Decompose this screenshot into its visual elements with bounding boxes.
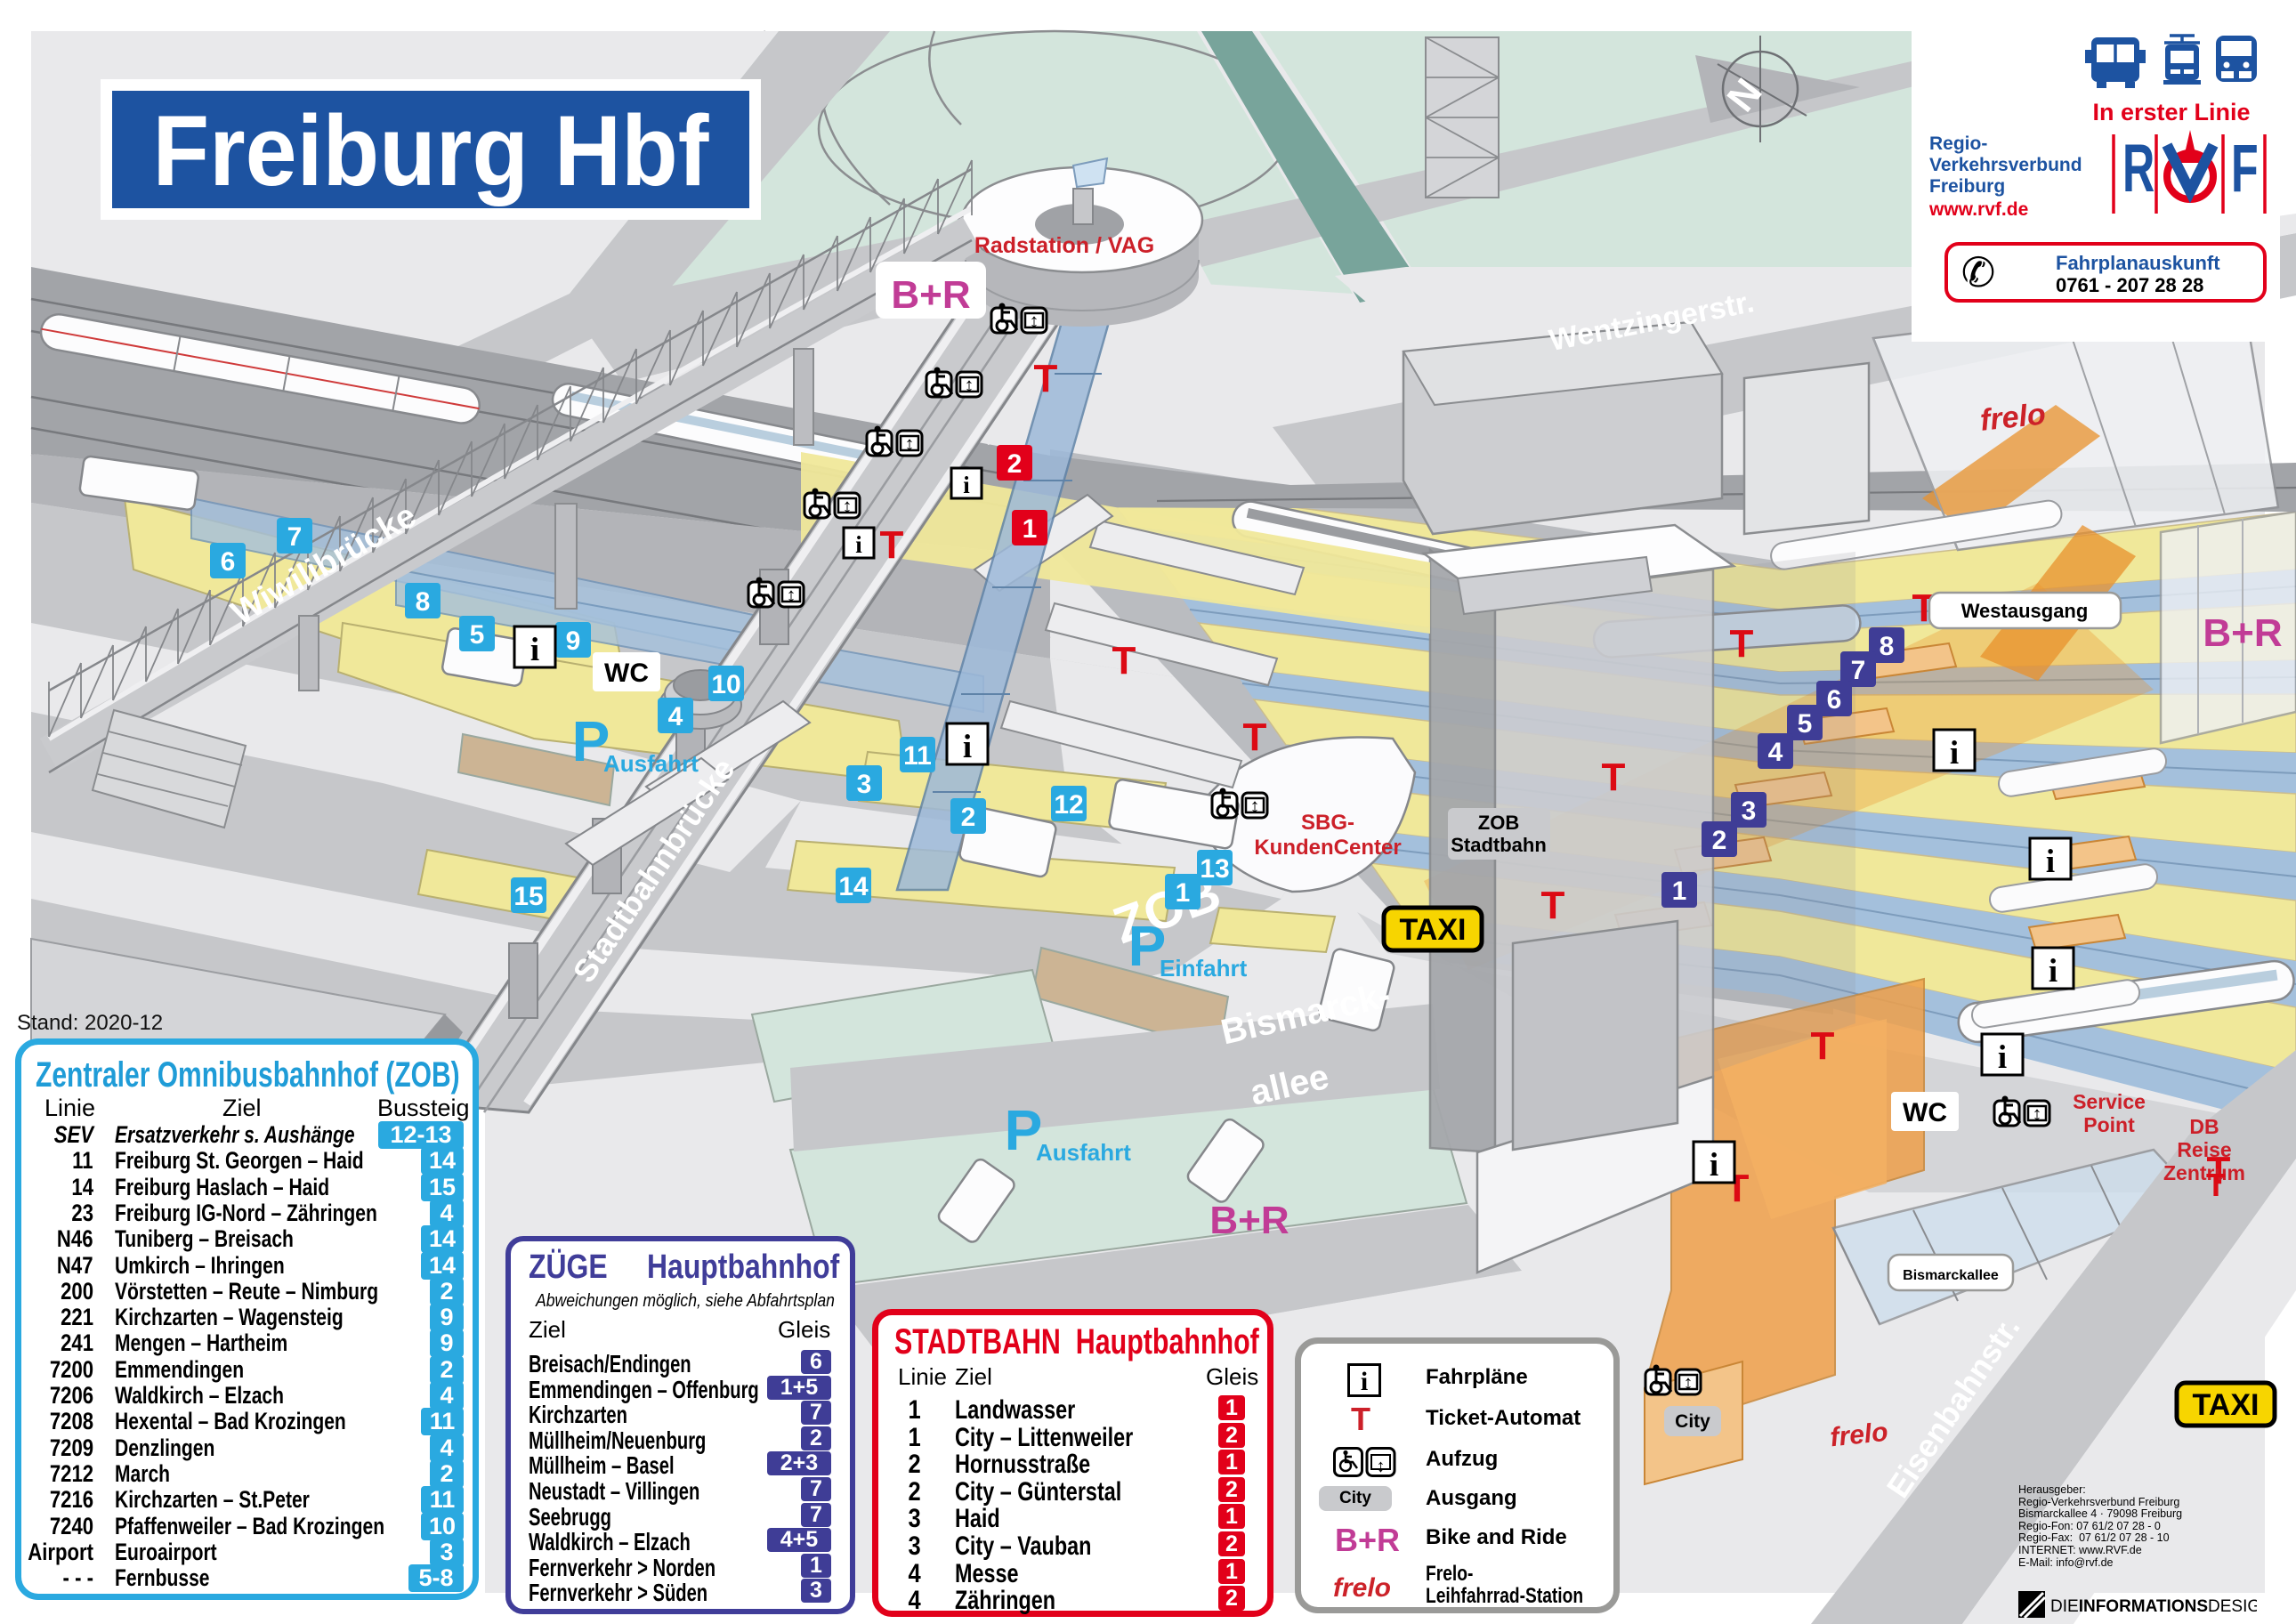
svg-text:1: 1 xyxy=(1023,514,1038,544)
svg-text:DIEINFORMATIONSDESIGNER: DIEINFORMATIONSDESIGNER xyxy=(2050,1597,2257,1616)
svg-text:frelo: frelo xyxy=(1829,1418,1889,1453)
svg-text:TAXI: TAXI xyxy=(2193,1388,2260,1422)
svg-text:9: 9 xyxy=(566,626,581,656)
svg-text:i: i xyxy=(1710,1147,1718,1184)
svg-text:2: 2 xyxy=(1712,826,1727,855)
svg-text:R: R xyxy=(2122,131,2155,206)
svg-text:4: 4 xyxy=(668,702,683,731)
svg-text:i: i xyxy=(1950,735,1959,772)
svg-text:3: 3 xyxy=(1742,796,1757,826)
svg-text:WC: WC xyxy=(1903,1098,1947,1127)
svg-text:City: City xyxy=(1675,1411,1710,1432)
svg-text:2: 2 xyxy=(1007,449,1023,479)
svg-text:6: 6 xyxy=(1827,685,1842,715)
svg-text:i: i xyxy=(1361,1367,1368,1396)
svg-text:T: T xyxy=(1112,639,1136,683)
svg-text:In erster Linie: In erster Linie xyxy=(2092,99,2250,125)
svg-text:7: 7 xyxy=(287,522,303,552)
svg-text:1: 1 xyxy=(1176,878,1191,908)
svg-text:Regio-: Regio- xyxy=(1929,133,1987,154)
svg-text:B+R: B+R xyxy=(891,273,970,317)
svg-text:Verkehrsverbund: Verkehrsverbund xyxy=(1929,155,2082,175)
svg-text:8: 8 xyxy=(1880,632,1895,661)
svg-text:↕: ↕ xyxy=(965,374,974,396)
svg-text:Freiburg: Freiburg xyxy=(1929,176,2005,197)
svg-text:B+R: B+R xyxy=(2203,611,2282,655)
svg-text:7: 7 xyxy=(1851,656,1866,685)
svg-text:T: T xyxy=(880,523,904,567)
svg-text:↕: ↕ xyxy=(905,432,915,455)
svg-text:TAXI: TAXI xyxy=(1400,913,1467,947)
svg-text:Reise: Reise xyxy=(2177,1138,2231,1161)
svg-text:ZOB: ZOB xyxy=(1478,812,1519,834)
svg-text:↕: ↕ xyxy=(1250,795,1260,817)
svg-text:↕: ↕ xyxy=(2033,1103,2042,1125)
svg-text:KundenCenter: KundenCenter xyxy=(1254,836,1401,860)
svg-text:i: i xyxy=(963,729,972,765)
svg-text:↕: ↕ xyxy=(1684,1371,1694,1394)
svg-text:10: 10 xyxy=(711,670,740,699)
svg-text:T: T xyxy=(1034,357,1058,400)
svg-text:i: i xyxy=(963,472,970,498)
svg-text:T: T xyxy=(2206,1167,2226,1203)
svg-text:Ausfahrt: Ausfahrt xyxy=(603,750,699,777)
svg-text:↕: ↕ xyxy=(787,584,796,606)
svg-text:Point: Point xyxy=(2083,1113,2135,1136)
svg-text:B+R: B+R xyxy=(1209,1199,1289,1242)
svg-text:↕: ↕ xyxy=(843,495,853,517)
svg-text:3: 3 xyxy=(857,770,872,799)
svg-text:5: 5 xyxy=(1798,709,1813,739)
svg-text:T: T xyxy=(1811,1024,1835,1068)
svg-text:↕: ↕ xyxy=(1030,310,1039,332)
svg-text:frelo: frelo xyxy=(1978,397,2047,437)
svg-text:F: F xyxy=(2231,131,2259,206)
svg-text:Einfahrt: Einfahrt xyxy=(1160,955,1248,982)
svg-text:Stadtbahn: Stadtbahn xyxy=(1451,834,1547,856)
svg-text:www.rvf.de: www.rvf.de xyxy=(1928,199,2028,220)
svg-text:i: i xyxy=(2049,953,2058,990)
svg-text:T: T xyxy=(1541,884,1565,927)
svg-text:Service: Service xyxy=(2073,1090,2146,1113)
svg-text:i: i xyxy=(2046,844,2055,880)
svg-text:2: 2 xyxy=(961,803,976,832)
svg-text:↕: ↕ xyxy=(1377,1457,1386,1476)
svg-text:✆: ✆ xyxy=(1961,249,1996,295)
svg-text:11: 11 xyxy=(903,741,932,771)
svg-text:8: 8 xyxy=(416,587,431,617)
svg-text:T: T xyxy=(1730,622,1754,666)
svg-text:DB: DB xyxy=(2189,1115,2219,1138)
svg-text:Radstation / VAG: Radstation / VAG xyxy=(974,233,1154,258)
svg-text:12: 12 xyxy=(1054,790,1083,820)
svg-text:Zentrum: Zentrum xyxy=(2163,1161,2245,1184)
svg-text:SBG-: SBG- xyxy=(1301,811,1354,835)
svg-text:Bismarckallee: Bismarckallee xyxy=(1903,1268,1999,1283)
svg-text:Westausgang: Westausgang xyxy=(1961,600,2089,622)
svg-text:5: 5 xyxy=(470,620,485,650)
svg-text:0761 - 207 28 28: 0761 - 207 28 28 xyxy=(2056,274,2203,296)
svg-text:WC: WC xyxy=(604,658,649,688)
svg-text:13: 13 xyxy=(1200,854,1229,884)
svg-text:Fahrplanauskunft: Fahrplanauskunft xyxy=(2056,252,2220,274)
svg-text:14: 14 xyxy=(838,872,869,901)
svg-text:1: 1 xyxy=(1672,877,1687,906)
svg-text:i: i xyxy=(1998,1039,2007,1076)
svg-text:i: i xyxy=(855,531,862,558)
svg-text:i: i xyxy=(530,632,539,668)
svg-text:T: T xyxy=(1243,715,1267,759)
svg-text:4: 4 xyxy=(1768,738,1783,767)
svg-text:T: T xyxy=(1602,755,1626,799)
svg-text:Ausfahrt: Ausfahrt xyxy=(1036,1139,1131,1166)
svg-text:6: 6 xyxy=(221,547,236,577)
svg-text:15: 15 xyxy=(513,882,543,911)
